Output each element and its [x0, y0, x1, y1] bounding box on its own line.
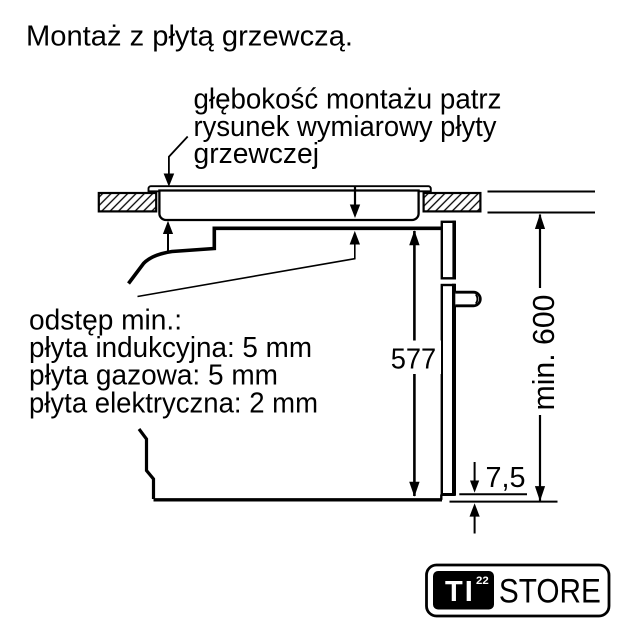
svg-text:7,5: 7,5 — [486, 462, 526, 494]
svg-text:min. 600: min. 600 — [526, 295, 561, 411]
svg-text:STORE: STORE — [499, 573, 601, 611]
svg-text:577: 577 — [391, 344, 437, 376]
svg-text:22: 22 — [476, 575, 489, 587]
svg-text:Montaż z płytą grzewczą.: Montaż z płytą grzewczą. — [26, 21, 353, 53]
svg-text:grzewczej: grzewczej — [194, 138, 320, 170]
svg-text:płyta elektryczna: 2 mm: płyta elektryczna: 2 mm — [29, 388, 318, 420]
svg-text:TI: TI — [445, 576, 475, 608]
